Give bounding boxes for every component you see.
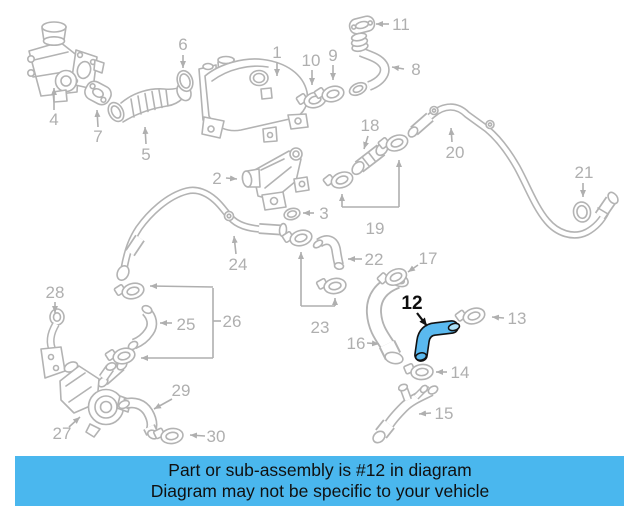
callout-2-label: 2 [212,169,221,188]
callout-24-label: 24 [229,255,248,274]
callout-25-label: 25 [177,315,196,334]
callout-10: 10 [302,51,321,85]
callout-5: 5 [141,127,150,164]
callout-14: 14 [436,363,469,382]
callout-2: 2 [212,169,237,188]
callout-21: 21 [575,163,594,197]
callout-11: 11 [376,15,410,34]
callout-9-label: 9 [328,46,337,65]
clamp-26-upper [113,279,145,303]
callout-7: 7 [93,110,102,146]
callout-21-label: 21 [575,163,594,182]
part-2-bracket [241,148,309,210]
part-21-seal-ring [572,201,592,223]
part-28-bracket [41,309,65,378]
part-11-gasket [348,15,376,36]
clamp-30 [153,425,184,446]
part-22-elbow-hose [312,239,344,270]
callout-26-label: 26 [223,312,242,331]
callout-15-label: 15 [435,404,454,423]
callout-28: 28 [46,283,65,313]
callout-25: 25 [160,315,195,334]
callout-22-label: 22 [365,250,384,269]
callout-27-label: 27 [53,424,72,443]
callout-27: 27 [53,417,80,443]
callout-11-label: 11 [392,15,410,34]
callout-29-label: 29 [172,381,191,400]
callout-9: 9 [328,46,337,80]
callout-18: 18 [361,116,380,149]
callout-23-label: 23 [311,318,330,337]
caption-banner: Part or sub-assembly is #12 in diagram D… [15,456,624,506]
callout-30-label: 30 [207,427,226,446]
callout-1-label: 1 [272,43,281,62]
callout-13-label: 13 [508,309,527,328]
part-29-hose [118,399,160,440]
callout-24: 24 [229,236,248,274]
part-25-elbow-hose [127,304,153,351]
part-15-t-hose [371,383,439,445]
callout-5-label: 5 [141,145,150,164]
callout-18-label: 18 [361,116,380,135]
callout-17: 17 [408,249,437,272]
callout-28-label: 28 [46,283,65,302]
callout-15: 15 [419,404,453,423]
callout-30: 30 [190,427,225,446]
part-24-long-hose [115,190,287,282]
callout-3: 3 [303,204,329,223]
parts-diagram: 1 2 3 4 5 6 7 8 9 10 11 12 [0,0,640,512]
callout-17-label: 17 [419,249,438,268]
part-3-seal-ring [283,207,301,222]
callout-6-label: 6 [178,35,187,54]
callout-8: 8 [392,60,421,79]
clamp-19a [322,167,355,193]
clamp-14 [403,362,433,382]
callout-20-label: 20 [446,143,465,162]
parts-diagram-page: 1 2 3 4 5 6 7 8 9 10 11 12 [0,0,640,512]
callout-8-label: 8 [411,60,420,79]
callout-23: 23 [301,252,335,337]
callout-19-label: 19 [366,219,385,238]
caption-line-1: Part or sub-assembly is #12 in diagram [168,460,471,480]
callout-13: 13 [492,309,526,328]
callout-3-label: 3 [319,204,328,223]
caption-line-2: Diagram may not be specific to your vehi… [151,481,489,501]
callout-22: 22 [348,250,383,269]
clamp-23-lower [316,275,347,297]
callout-14-label: 14 [451,363,470,382]
callout-16-label: 16 [347,334,366,353]
callout-7-label: 7 [93,127,102,146]
part-12-highlighted-hose [415,322,460,361]
callout-19: 19 [342,160,399,238]
callout-10-label: 10 [302,51,321,70]
callout-4-label: 4 [49,110,58,129]
callout-6: 6 [178,35,187,68]
callout-12-highlight: 12 [401,293,427,326]
part-8-hose [348,32,385,98]
part-1-cooler-assembly [199,57,308,143]
callout-20: 20 [446,128,465,162]
callout-29: 29 [154,381,190,409]
callout-12-label: 12 [401,293,422,314]
